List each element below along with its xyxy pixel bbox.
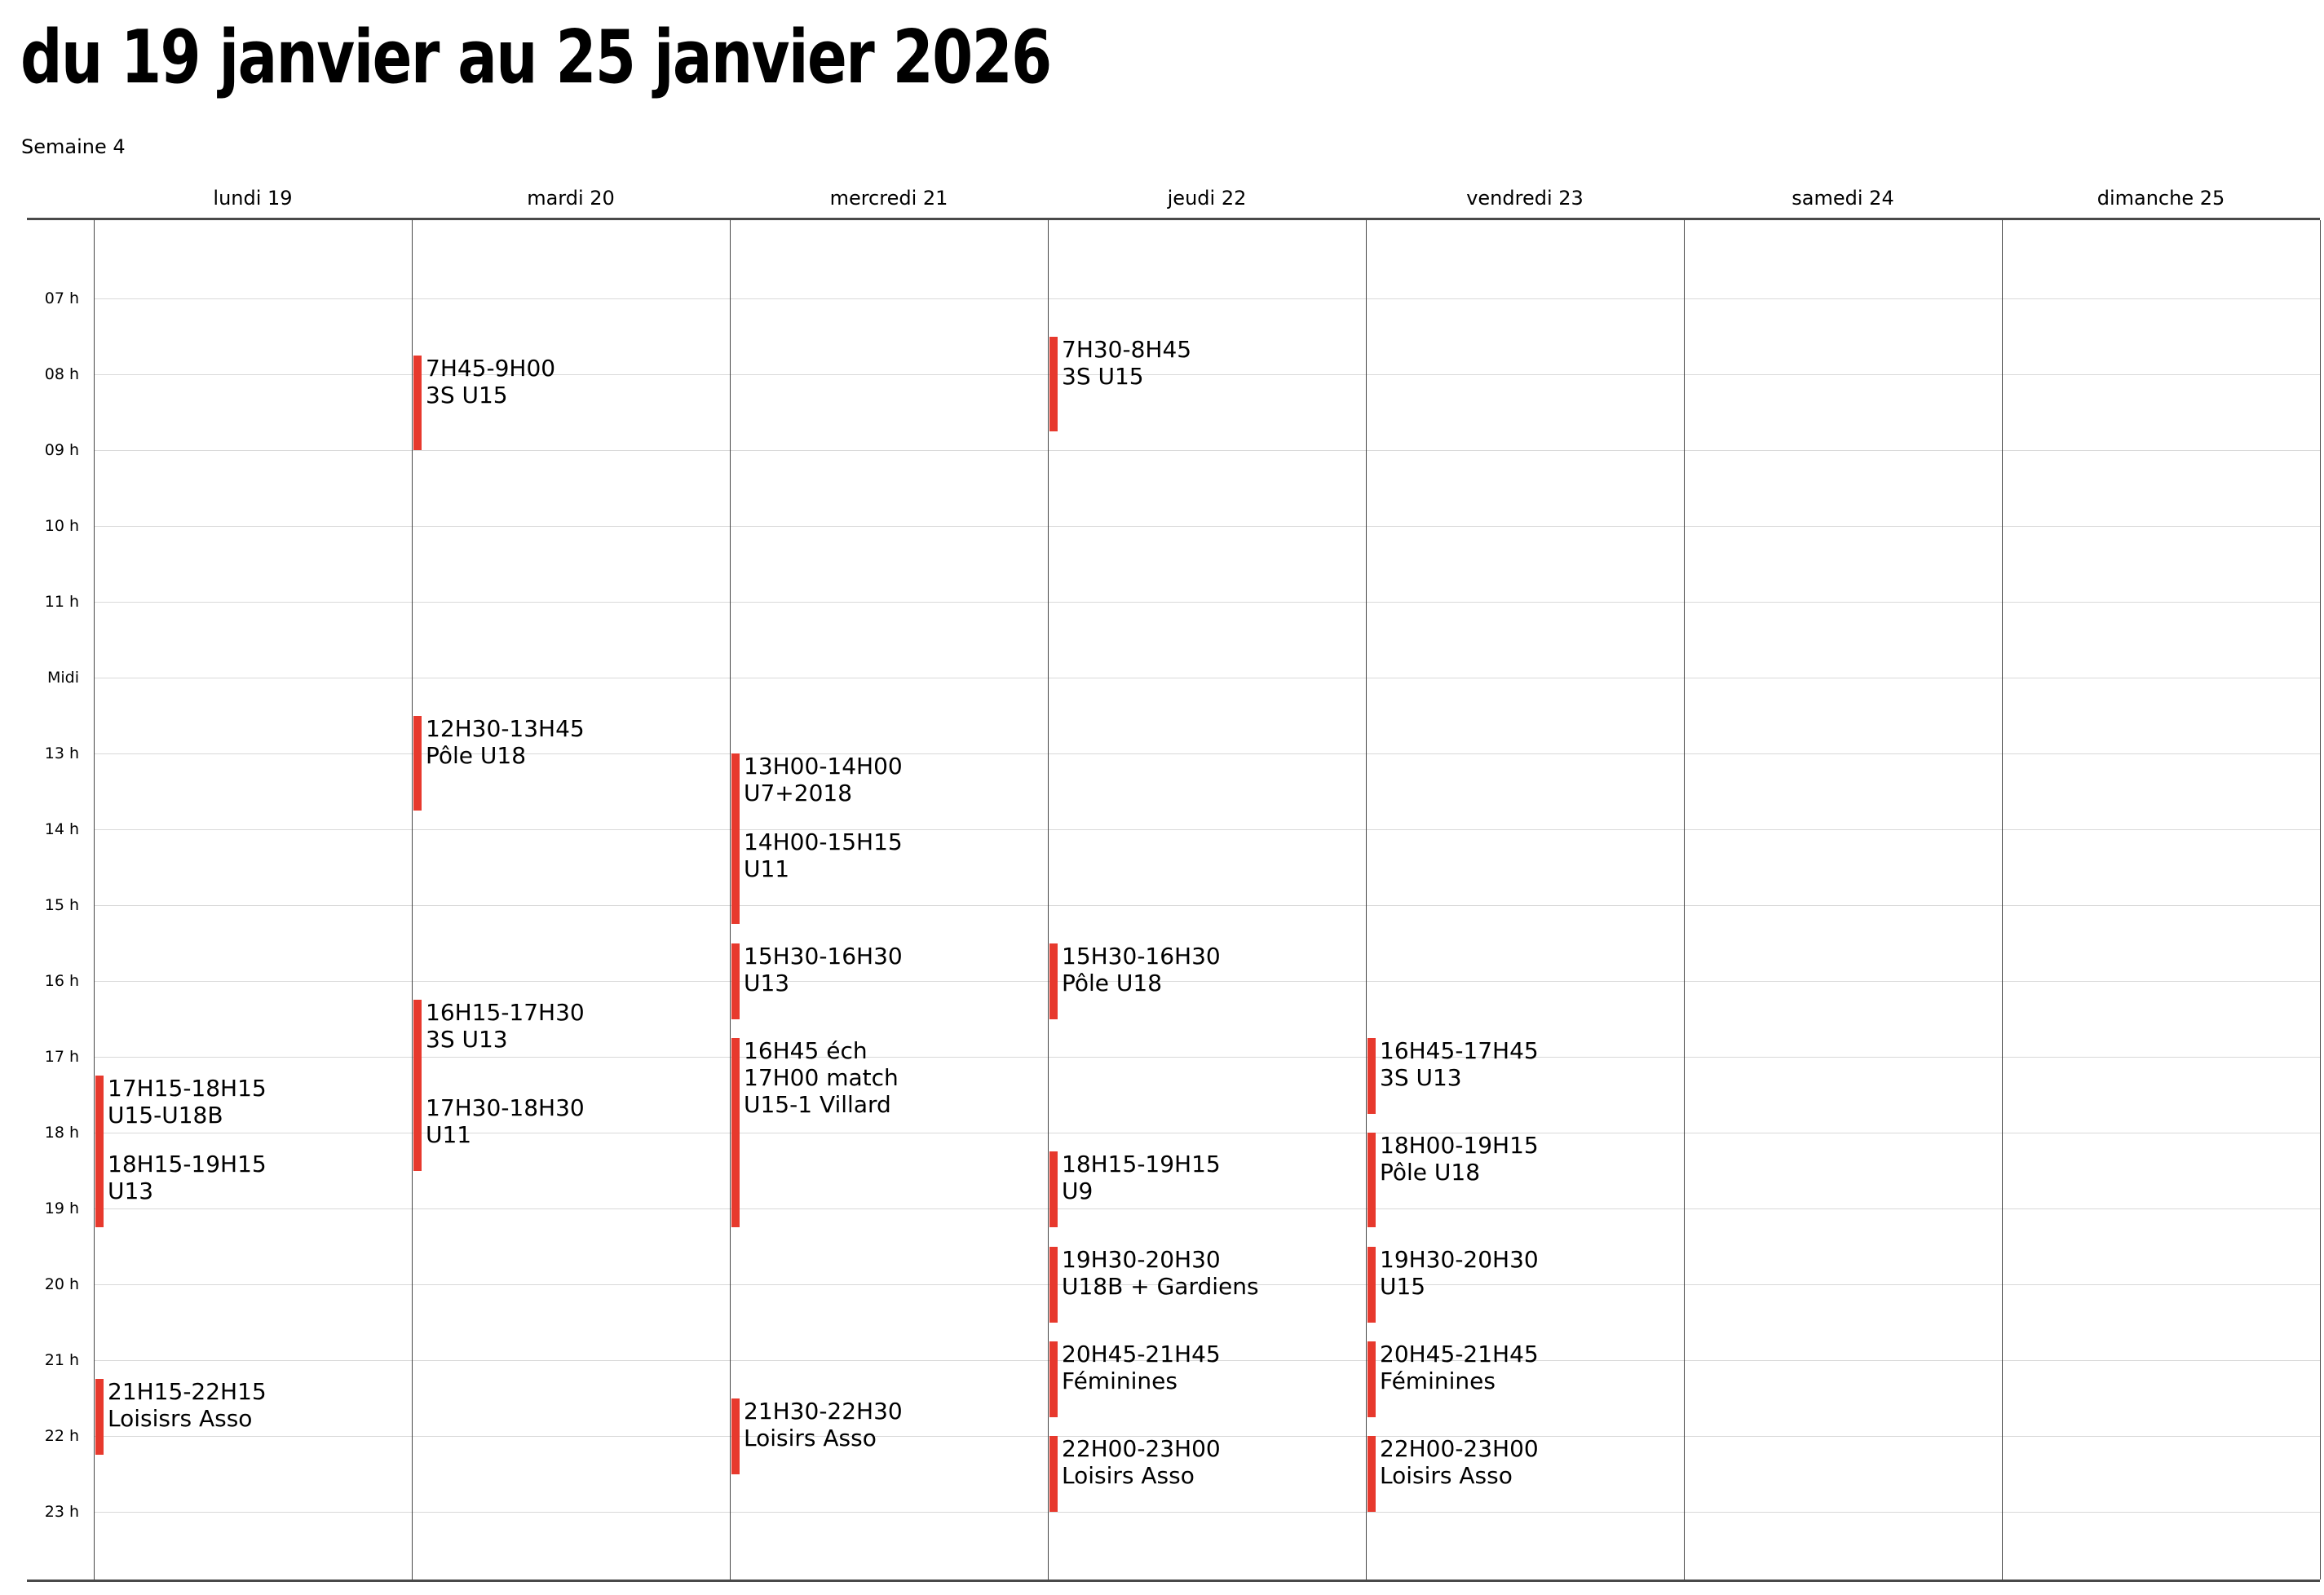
- event-label: 3S U15: [426, 382, 555, 409]
- event-time: 15H30-16H30: [744, 943, 903, 970]
- event-text: 16H45-17H453S U13: [1380, 1037, 1539, 1091]
- event-color-bar: [413, 716, 422, 811]
- event-text: 16H45 éch17H00 matchU15-1 Villard: [744, 1037, 899, 1118]
- event-label: Pôle U18: [1380, 1159, 1539, 1186]
- hour-gridline: [94, 1057, 2320, 1058]
- column-divider: [412, 220, 413, 1580]
- hour-gridline: [94, 526, 2320, 527]
- event-time: 17H15-18H15: [108, 1075, 267, 1102]
- column-divider: [2320, 220, 2321, 1580]
- hour-label: 17 h: [27, 1045, 79, 1069]
- event-text: 13H00-14H00U7+2018: [744, 753, 903, 806]
- event-color-bar: [1049, 1151, 1058, 1227]
- event-label: 3S U13: [426, 1026, 585, 1053]
- hour-label: 10 h: [27, 514, 79, 538]
- day-header: dimanche 25: [2002, 186, 2320, 210]
- event-text: 20H45-21H45Féminines: [1062, 1341, 1221, 1394]
- event-time: 15H30-16H30: [1062, 943, 1221, 970]
- event-text: 12H30-13H45Pôle U18: [426, 715, 585, 769]
- hour-label: 16 h: [27, 969, 79, 993]
- event-label: U9: [1062, 1177, 1221, 1204]
- event-time: 7H30-8H45: [1062, 336, 1191, 363]
- event-time: 22H00-23H00: [1062, 1435, 1221, 1462]
- day-header: samedi 24: [1684, 186, 2002, 210]
- event-text: 17H15-18H15U15-U18B: [108, 1075, 267, 1129]
- event-time: 17H30-18H30: [426, 1094, 585, 1121]
- hour-label: 20 h: [27, 1272, 79, 1297]
- hour-gridline: [94, 905, 2320, 906]
- hour-gridline: [94, 1512, 2320, 1513]
- event-time: 19H30-20H30: [1380, 1246, 1539, 1273]
- event-time: 16H45-17H45: [1380, 1037, 1539, 1064]
- column-divider: [730, 220, 731, 1580]
- event-color-bar: [1049, 1341, 1058, 1417]
- event-time: 22H00-23H00: [1380, 1435, 1539, 1462]
- event-color-bar: [1367, 1436, 1376, 1512]
- week-subtitle: Semaine 4: [21, 135, 126, 158]
- day-header: vendredi 23: [1366, 186, 1684, 210]
- event-time: 14H00-15H15: [744, 828, 903, 855]
- hour-label: 22 h: [27, 1424, 79, 1448]
- hour-label: 14 h: [27, 817, 79, 842]
- page-title: du 19 janvier au 25 janvier 2026: [20, 15, 1051, 100]
- event-text: 16H15-17H303S U13: [426, 999, 585, 1053]
- calendar-grid: 07 h08 h09 h10 h11 hMidi13 h14 h15 h16 h…: [27, 218, 2320, 1582]
- event-label: U18B + Gardiens: [1062, 1273, 1259, 1300]
- event-color-bar: [1367, 1038, 1376, 1114]
- event-label: 3S U13: [1380, 1064, 1539, 1091]
- event-color-bar: [1049, 943, 1058, 1019]
- event-color-bar: [731, 1038, 740, 1228]
- hour-label: 21 h: [27, 1348, 79, 1372]
- event-label: U7+2018: [744, 780, 903, 806]
- day-header: jeudi 22: [1048, 186, 1366, 210]
- event-label: Féminines: [1062, 1367, 1221, 1394]
- event-time: 16H45 éch: [744, 1037, 899, 1064]
- event-label: Loisirs Asso: [1380, 1462, 1539, 1489]
- hour-label: 09 h: [27, 438, 79, 462]
- column-divider: [94, 220, 95, 1580]
- day-header: mercredi 21: [730, 186, 1048, 210]
- event-color-bar: [95, 1379, 104, 1455]
- hour-label: 18 h: [27, 1120, 79, 1145]
- event-color-bar: [95, 1076, 104, 1151]
- hour-label: 19 h: [27, 1196, 79, 1221]
- event-label: Loisirs Asso: [744, 1425, 903, 1451]
- hour-gridline: [94, 450, 2320, 451]
- event-text: 20H45-21H45Féminines: [1380, 1341, 1539, 1394]
- event-time: 12H30-13H45: [426, 715, 585, 742]
- event-text: 21H30-22H30Loisirs Asso: [744, 1398, 903, 1451]
- event-label: U15-U18B: [108, 1102, 267, 1129]
- event-color-bar: [1049, 1436, 1058, 1512]
- event-text: 7H30-8H453S U15: [1062, 336, 1191, 390]
- day-header: mardi 20: [412, 186, 730, 210]
- event-text: 21H15-22H15Loisisrs Asso: [108, 1378, 267, 1432]
- event-label: U11: [426, 1121, 585, 1148]
- event-color-bar: [1367, 1341, 1376, 1417]
- event-label: Pôle U18: [1062, 970, 1221, 996]
- event-color-bar: [731, 753, 740, 829]
- event-label: 17H00 match: [744, 1064, 899, 1091]
- day-header: lundi 19: [94, 186, 412, 210]
- event-label: Loisisrs Asso: [108, 1405, 267, 1432]
- hour-label: 11 h: [27, 590, 79, 614]
- event-color-bar: [413, 1000, 422, 1094]
- event-color-bar: [413, 1095, 422, 1171]
- event-text: 14H00-15H15U11: [744, 828, 903, 882]
- event-color-bar: [413, 356, 422, 450]
- event-label: Pôle U18: [426, 742, 585, 769]
- hour-label: 07 h: [27, 286, 79, 311]
- event-color-bar: [1049, 337, 1058, 431]
- event-time: 21H30-22H30: [744, 1398, 903, 1425]
- calendar-week-view: du 19 janvier au 25 janvier 2026 Semaine…: [0, 0, 2324, 1595]
- hour-label: 13 h: [27, 741, 79, 766]
- event-color-bar: [731, 1398, 740, 1474]
- event-label: 3S U15: [1062, 363, 1191, 390]
- event-time: 18H15-19H15: [1062, 1151, 1221, 1177]
- event-text: 22H00-23H00Loisirs Asso: [1062, 1435, 1221, 1489]
- event-time: 19H30-20H30: [1062, 1246, 1259, 1273]
- event-label: Féminines: [1380, 1367, 1539, 1394]
- day-headers-row: lundi 19mardi 20mercredi 21jeudi 22vendr…: [0, 186, 2324, 212]
- event-time: 20H45-21H45: [1062, 1341, 1221, 1367]
- hour-label: 23 h: [27, 1500, 79, 1524]
- event-time: 13H00-14H00: [744, 753, 903, 780]
- hour-gridline: [94, 829, 2320, 830]
- event-label: U11: [744, 855, 903, 882]
- event-text: 19H30-20H30U15: [1380, 1246, 1539, 1300]
- hour-label: Midi: [27, 665, 79, 690]
- event-text: 7H45-9H003S U15: [426, 355, 555, 409]
- hour-gridline: [94, 1208, 2320, 1209]
- event-color-bar: [1367, 1133, 1376, 1227]
- event-label: Loisirs Asso: [1062, 1462, 1221, 1489]
- column-divider: [1048, 220, 1049, 1580]
- event-label: U13: [744, 970, 903, 996]
- event-text: 15H30-16H30Pôle U18: [1062, 943, 1221, 996]
- event-color-bar: [731, 829, 740, 924]
- column-divider: [1366, 220, 1367, 1580]
- hour-gridline: [94, 678, 2320, 678]
- event-label: U15: [1380, 1273, 1539, 1300]
- event-time: 18H00-19H15: [1380, 1132, 1539, 1159]
- event-time: 20H45-21H45: [1380, 1341, 1539, 1367]
- event-time: 18H15-19H15: [108, 1151, 267, 1177]
- column-divider: [1684, 220, 1685, 1580]
- event-text: 15H30-16H30U13: [744, 943, 903, 996]
- event-text: 19H30-20H30U18B + Gardiens: [1062, 1246, 1259, 1300]
- hour-gridline: [94, 298, 2320, 299]
- event-color-bar: [1049, 1247, 1058, 1323]
- event-color-bar: [95, 1151, 104, 1227]
- event-label: U13: [108, 1177, 267, 1204]
- hour-label: 08 h: [27, 362, 79, 387]
- event-color-bar: [1367, 1247, 1376, 1323]
- event-text: 18H15-19H15U9: [1062, 1151, 1221, 1204]
- event-text: 18H00-19H15Pôle U18: [1380, 1132, 1539, 1186]
- event-time: 7H45-9H00: [426, 355, 555, 382]
- event-color-bar: [731, 943, 740, 1019]
- event-time: 21H15-22H15: [108, 1378, 267, 1405]
- hour-gridline: [94, 602, 2320, 603]
- event-time: 16H15-17H30: [426, 999, 585, 1026]
- hour-label: 15 h: [27, 893, 79, 917]
- column-divider: [2002, 220, 2003, 1580]
- event-text: 17H30-18H30U11: [426, 1094, 585, 1148]
- event-text: 18H15-19H15U13: [108, 1151, 267, 1204]
- event-text: 22H00-23H00Loisirs Asso: [1380, 1435, 1539, 1489]
- event-label: U15-1 Villard: [744, 1091, 899, 1118]
